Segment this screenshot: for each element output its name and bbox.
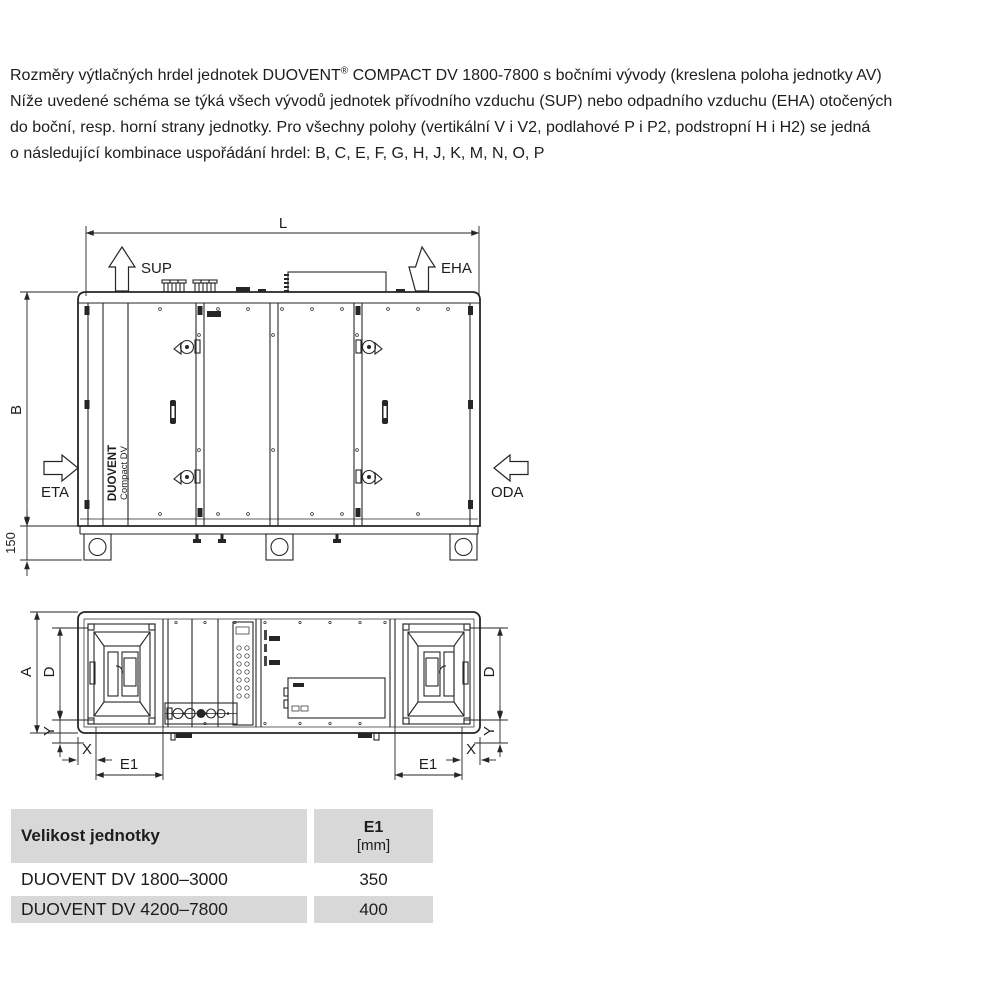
label-Y-left: Y: [41, 726, 58, 736]
datasheet-page: Rozměry výtlačných hrdel jednotek DUOVEN…: [0, 0, 1000, 1000]
label-X-left: X: [82, 741, 92, 758]
table-header-e1-unit: [mm]: [357, 837, 390, 854]
label-B: B: [8, 405, 25, 415]
lock-slots: [170, 400, 388, 424]
electrical-box: [284, 678, 385, 718]
table-row-value: 400: [314, 896, 433, 923]
middle-section: [163, 619, 395, 740]
table-header-e1-symbol: E1: [364, 819, 384, 837]
label-150: 150: [3, 532, 18, 554]
foot-right: [450, 534, 477, 560]
oda-arrow-icon: [494, 455, 528, 481]
roof-fittings: [162, 272, 405, 292]
e1-spec-table: Velikost jednotky E1 [mm] DUOVENT DV 180…: [11, 809, 433, 923]
base-frame: [80, 526, 478, 560]
foot-left: [84, 534, 111, 560]
coil-connections: [165, 703, 237, 724]
brand-name-label: DUOVENT: [107, 445, 119, 501]
hinge-marks: [85, 306, 474, 517]
fan-left: [90, 632, 150, 716]
dimension-D-left: D: [41, 628, 94, 720]
screws: [159, 308, 450, 516]
label-D-right: D: [481, 666, 498, 677]
label-ETA: ETA: [41, 484, 69, 501]
label-SUP: SUP: [141, 260, 172, 277]
label-A: A: [18, 667, 35, 677]
fan-section-right: [403, 624, 470, 724]
dimension-E1-right: E1: [395, 727, 462, 780]
fan-section-left: [88, 624, 155, 724]
foot-middle: [266, 534, 293, 560]
unit-body-side: DUOVENT Compact DV: [78, 292, 480, 526]
label-Y-right: Y: [481, 726, 498, 736]
fan-right: [408, 632, 468, 716]
roof-box: [288, 272, 386, 292]
label-D-left: D: [41, 666, 58, 677]
label-EHA: EHA: [441, 260, 472, 277]
top-view-diagram: A D Y X: [18, 612, 508, 780]
bottom-connectors: [171, 733, 379, 740]
sup-arrow-icon: [109, 247, 135, 291]
drain-valves: [193, 534, 341, 543]
brand-model-label: Compact DV: [119, 445, 130, 500]
table-header-size: Velikost jednotky: [11, 809, 307, 863]
table-row-label: DUOVENT DV 1800–3000: [11, 866, 307, 893]
table-header-e1: E1 [mm]: [314, 809, 433, 863]
label-E1-left: E1: [120, 756, 138, 773]
dimension-X-left: X: [62, 727, 112, 780]
label-ODA: ODA: [491, 484, 524, 501]
dimension-150: 150: [3, 510, 82, 576]
terminal-strip: [233, 619, 280, 727]
eta-arrow-icon: [44, 455, 78, 481]
label-X-right: X: [466, 741, 476, 758]
label-E1-right: E1: [419, 756, 437, 773]
eha-arrow-icon: [409, 247, 435, 291]
side-view-diagram: L SUP EHA: [3, 215, 528, 576]
dimension-D-right: D: [464, 628, 508, 720]
dimension-E1-left: E1: [96, 727, 163, 780]
table-row-value: 350: [314, 866, 433, 893]
label-L: L: [279, 215, 287, 232]
table-row-label: DUOVENT DV 4200–7800: [11, 896, 307, 923]
